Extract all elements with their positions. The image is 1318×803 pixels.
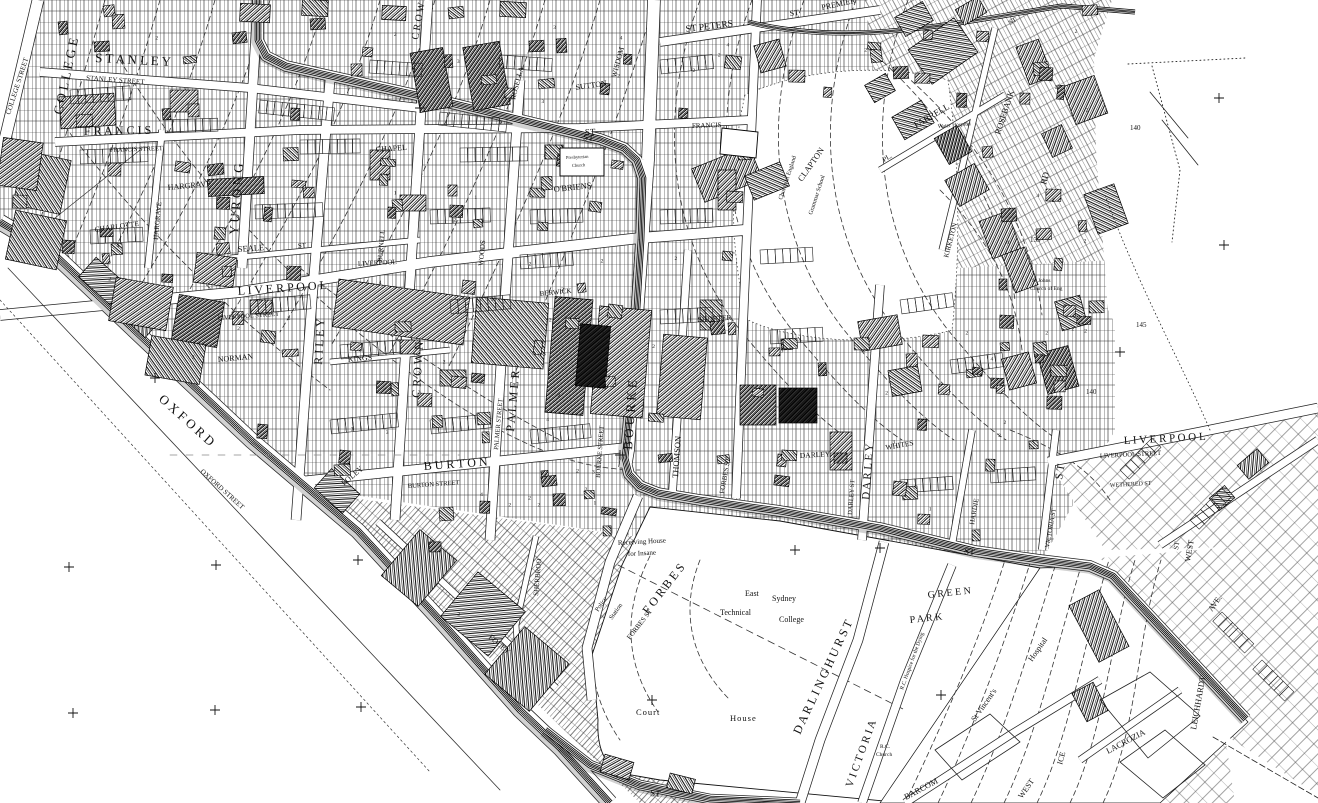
svg-text:2: 2 [585, 487, 588, 493]
svg-text:3: 3 [893, 439, 896, 445]
svg-text:4: 4 [991, 356, 994, 362]
svg-text:Court: Court [636, 707, 660, 717]
svg-text:FRANCIS: FRANCIS [692, 121, 722, 130]
svg-text:SEALE: SEALE [237, 242, 264, 254]
svg-text:2: 2 [674, 256, 677, 262]
svg-text:2: 2 [601, 258, 604, 264]
svg-text:4: 4 [60, 117, 63, 123]
svg-text:1: 1 [593, 501, 596, 507]
svg-text:2: 2 [1075, 29, 1078, 35]
svg-text:3: 3 [491, 297, 494, 303]
svg-text:ST: ST [650, 788, 662, 799]
svg-text:2: 2 [108, 276, 111, 282]
svg-text:St Johns: St Johns [1032, 278, 1051, 284]
svg-text:2: 2 [1084, 329, 1087, 335]
svg-text:DARLEY: DARLEY [800, 449, 831, 460]
svg-text:2: 2 [576, 468, 579, 474]
svg-text:House: House [730, 713, 757, 723]
svg-text:4: 4 [1036, 193, 1039, 199]
svg-text:Church: Church [572, 162, 586, 168]
svg-text:2: 2 [1071, 326, 1074, 332]
svg-text:1: 1 [929, 507, 932, 513]
svg-text:2: 2 [718, 52, 721, 58]
svg-text:R I L E Y: R I L E Y [311, 318, 327, 365]
svg-text:R.C.: R.C. [880, 744, 891, 750]
svg-text:2: 2 [457, 611, 460, 617]
svg-text:2: 2 [549, 317, 552, 323]
svg-text:4: 4 [480, 492, 483, 498]
svg-text:2: 2 [998, 433, 1001, 439]
svg-text:140: 140 [1130, 124, 1141, 132]
svg-text:4: 4 [1006, 240, 1009, 246]
svg-text:3: 3 [592, 470, 595, 476]
svg-text:C R O W N: C R O W N [409, 341, 426, 398]
svg-text:2: 2 [192, 354, 195, 360]
svg-text:4: 4 [116, 243, 119, 249]
svg-text:4: 4 [620, 35, 623, 41]
svg-text:Church: Church [876, 752, 892, 758]
svg-text:ST: ST [964, 546, 976, 557]
svg-text:ST: ST [789, 8, 799, 18]
svg-text:ST: ST [583, 132, 595, 143]
svg-text:3: 3 [541, 99, 544, 105]
svg-text:2: 2 [443, 360, 446, 366]
svg-text:2: 2 [602, 328, 605, 334]
svg-text:140: 140 [1086, 388, 1097, 396]
svg-text:F R A N C I S: F R A N C I S [84, 123, 152, 138]
svg-text:ST: ST [298, 241, 307, 250]
svg-text:1: 1 [474, 195, 477, 201]
svg-text:2: 2 [617, 74, 620, 80]
svg-text:2: 2 [1055, 84, 1058, 90]
svg-text:3: 3 [1047, 352, 1050, 358]
svg-text:1: 1 [394, 190, 397, 196]
svg-text:2: 2 [864, 48, 867, 54]
svg-text:2: 2 [417, 371, 420, 377]
svg-text:2: 2 [885, 390, 888, 396]
svg-text:2: 2 [394, 32, 397, 38]
svg-text:2: 2 [1045, 331, 1048, 337]
svg-text:4: 4 [1050, 371, 1053, 377]
svg-text:2: 2 [1086, 108, 1089, 114]
svg-text:3: 3 [386, 430, 389, 436]
svg-text:2: 2 [966, 331, 969, 337]
svg-text:2: 2 [529, 261, 532, 267]
svg-text:2: 2 [1052, 198, 1055, 204]
svg-text:4: 4 [379, 280, 382, 286]
svg-text:2: 2 [692, 68, 695, 74]
svg-text:3: 3 [543, 351, 546, 357]
svg-text:2: 2 [454, 218, 457, 224]
svg-text:3: 3 [457, 59, 460, 65]
svg-text:135: 135 [1030, 236, 1041, 244]
svg-text:Church of Eng: Church of Eng [1030, 285, 1063, 292]
svg-text:2: 2 [1084, 238, 1087, 244]
svg-text:2: 2 [237, 326, 240, 332]
svg-text:2: 2 [91, 106, 94, 112]
svg-text:4: 4 [546, 417, 549, 423]
svg-text:Sydney: Sydney [772, 594, 796, 603]
svg-text:for Insane: for Insane [628, 549, 657, 558]
svg-text:3: 3 [781, 348, 784, 354]
svg-text:2: 2 [155, 35, 158, 41]
svg-text:2: 2 [557, 393, 560, 399]
svg-text:3: 3 [351, 427, 354, 433]
svg-text:3: 3 [776, 39, 779, 45]
svg-text:4: 4 [726, 43, 729, 49]
svg-text:2: 2 [561, 287, 564, 293]
svg-text:2: 2 [494, 41, 497, 47]
svg-text:2: 2 [1003, 420, 1006, 426]
svg-text:2: 2 [652, 344, 655, 350]
svg-text:3: 3 [553, 25, 556, 31]
svg-text:2: 2 [287, 316, 290, 322]
svg-text:2: 2 [1003, 118, 1006, 124]
svg-text:Technical: Technical [720, 608, 752, 617]
svg-text:2: 2 [528, 495, 531, 501]
svg-text:East: East [745, 589, 760, 598]
svg-text:College: College [779, 615, 804, 624]
svg-text:2: 2 [509, 502, 512, 508]
svg-text:2: 2 [538, 503, 541, 509]
svg-text:145: 145 [1136, 321, 1147, 329]
